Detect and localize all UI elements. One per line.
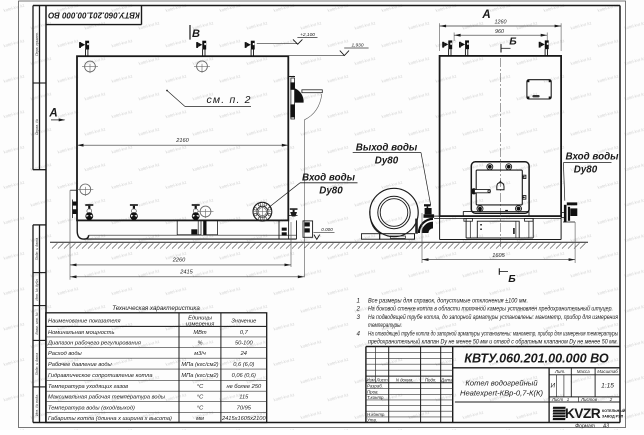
- svg-text:Подп. и дата: Подп. и дата: [35, 238, 39, 261]
- svg-text:Инв. № дубл.: Инв. № дубл.: [35, 278, 39, 300]
- svg-text:+2,100: +2,100: [300, 32, 315, 38]
- svg-text:см. п. 2: см. п. 2: [207, 94, 251, 106]
- svg-text:Все размеры для справок, допус: Все размеры для справок, допустимые откл…: [368, 298, 528, 305]
- svg-text:Габариты котла (длинна х ширин: Габариты котла (длинна х ширина х высота…: [48, 416, 172, 422]
- svg-text:ЗАВОД РЭП: ЗАВОД РЭП: [602, 414, 624, 418]
- svg-text:0,06 (0,6): 0,06 (0,6): [232, 373, 256, 379]
- svg-text:2415х1605х2100: 2415х1605х2100: [221, 416, 266, 422]
- svg-text:КВТУ.060.201.00.000 ВО: КВТУ.060.201.00.000 ВО: [464, 351, 609, 365]
- svg-text:0,6 (6,0): 0,6 (6,0): [233, 362, 254, 368]
- svg-text:Наименование показателя: Наименование показателя: [48, 319, 121, 325]
- svg-text:МПа (кгс/см2): МПа (кгс/см2): [181, 373, 218, 379]
- svg-text:0.000: 0.000: [321, 227, 333, 232]
- svg-text:Справ. №: Справ. №: [35, 119, 39, 135]
- svg-text:70/95: 70/95: [237, 405, 252, 411]
- svg-text:Heatexpert-КВр-0,7-К(К): Heatexpert-КВр-0,7-К(К): [460, 389, 544, 398]
- svg-text:температуры.: температуры.: [368, 322, 402, 329]
- svg-text:измерения: измерения: [186, 321, 214, 327]
- svg-text:1: 1: [357, 298, 360, 305]
- svg-text:2: 2: [609, 397, 613, 402]
- svg-text:А: А: [48, 108, 57, 120]
- svg-text:Лист: Лист: [375, 377, 388, 382]
- svg-text:В: В: [192, 28, 200, 40]
- svg-text:Подп.: Подп.: [425, 377, 437, 382]
- svg-text:Гидравлическое сопротивление к: Гидравлическое сопротивление котла: [48, 373, 153, 379]
- svg-text:Подп. и дата: Подп. и дата: [35, 353, 39, 376]
- svg-text:Выход воды: Выход воды: [356, 143, 418, 154]
- svg-text:1,930: 1,930: [351, 43, 363, 49]
- svg-text:Перв. примен.: Перв. примен.: [35, 32, 39, 56]
- svg-text:Dy80: Dy80: [319, 186, 343, 197]
- svg-text:Температура воды (вход/выход): Температура воды (вход/выход): [48, 405, 135, 411]
- svg-text:А3: А3: [602, 424, 609, 430]
- svg-text:предохранительный клапан Dy н: предохранительный клапан Dy не менее 50 …: [368, 339, 618, 346]
- svg-text:Номинальная мощность: Номинальная мощность: [48, 330, 114, 336]
- svg-text:2415: 2415: [179, 270, 193, 276]
- svg-text:Взам. инв. №: Взам. инв. №: [35, 312, 39, 334]
- svg-text:Масса: Масса: [577, 369, 591, 374]
- svg-text:1260: 1260: [495, 20, 507, 26]
- svg-text:Разраб.: Разраб.: [367, 384, 383, 389]
- svg-text:Инв. № подл.: Инв. № подл.: [35, 394, 39, 416]
- svg-text:На отводящей трубе котла до за: На отводящей трубе котла до запорной арм…: [368, 331, 618, 338]
- svg-text:Лит.: Лит.: [554, 369, 565, 374]
- svg-text:Масштаб: Масштаб: [597, 369, 618, 374]
- svg-text:Dy80: Dy80: [375, 156, 399, 167]
- svg-text:Температура уходящих газов: Температура уходящих газов: [48, 384, 128, 390]
- svg-text:°С: °С: [197, 395, 204, 401]
- svg-text:Расход воды: Расход воды: [48, 351, 82, 357]
- svg-text:не более 250: не более 250: [226, 384, 262, 390]
- svg-text:Техническая характеристика: Техническая характеристика: [112, 305, 200, 312]
- svg-text:Б: Б: [509, 36, 517, 48]
- svg-text:0,7: 0,7: [240, 330, 249, 336]
- svg-text:Дата: Дата: [440, 377, 453, 382]
- svg-text:Dy80: Dy80: [574, 165, 598, 176]
- svg-text:Листов: Листов: [580, 397, 598, 402]
- svg-text:N докум.: N докум.: [396, 377, 414, 382]
- svg-text:И: И: [551, 383, 556, 390]
- svg-text:%: %: [197, 340, 202, 346]
- svg-text:КВТУ.060.201.00.000 ВО: КВТУ.060.201.00.000 ВО: [47, 10, 140, 19]
- svg-text:°С: °С: [197, 384, 204, 390]
- svg-text:Рабочее давление воды: Рабочее давление воды: [48, 362, 113, 368]
- svg-text:Формат: Формат: [575, 424, 595, 430]
- svg-text:°С: °С: [197, 405, 204, 411]
- svg-text:А: А: [481, 9, 490, 21]
- svg-text:Н.контр.: Н.контр.: [367, 412, 386, 417]
- svg-text:2: 2: [356, 306, 361, 313]
- svg-text:Лист: Лист: [551, 397, 564, 402]
- svg-text:Вход воды: Вход воды: [566, 152, 620, 163]
- svg-text:2160: 2160: [175, 138, 189, 144]
- svg-text:4: 4: [357, 331, 361, 338]
- svg-text:На боковой стенке котла в обла: На боковой стенке котла в области топочн…: [368, 306, 613, 313]
- svg-text:Котел водогрейный: Котел водогрейный: [465, 379, 538, 388]
- svg-text:КОТЕЛЬНЫЙ: КОТЕЛЬНЫЙ: [602, 409, 626, 413]
- svg-text:Б: Б: [508, 273, 516, 285]
- svg-text:Диапазон рабочего регулировани: Диапазон рабочего регулирования: [47, 340, 141, 346]
- svg-text:МВт: МВт: [193, 330, 207, 336]
- svg-text:2260: 2260: [172, 258, 186, 264]
- svg-text:Максимальная рабочая температу: Максимальная рабочая температура воды: [48, 395, 166, 401]
- svg-text:Изм: Изм: [367, 377, 375, 382]
- svg-text:Вход воды: Вход воды: [302, 173, 356, 184]
- svg-text:KVZR: KVZR: [565, 406, 601, 421]
- svg-text:Утв.: Утв.: [367, 418, 377, 423]
- svg-text:МПа (кгс/см2): МПа (кгс/см2): [181, 362, 218, 368]
- svg-text:мм: мм: [196, 416, 204, 422]
- svg-text:3: 3: [357, 314, 361, 321]
- svg-text:24: 24: [240, 351, 247, 357]
- svg-text:1:15: 1:15: [601, 383, 614, 390]
- svg-text:м3/ч: м3/ч: [194, 351, 206, 357]
- svg-text:Значение: Значение: [231, 319, 256, 325]
- svg-text:115: 115: [239, 395, 249, 401]
- svg-text:Т.контр.: Т.контр.: [367, 395, 385, 400]
- svg-text:960: 960: [495, 29, 504, 35]
- svg-text:1605: 1605: [492, 253, 505, 259]
- svg-text:50-100: 50-100: [235, 340, 254, 346]
- svg-text:На подводящей трубе котла, до: На подводящей трубе котла, до запорной а…: [368, 314, 619, 321]
- svg-text:Пров.: Пров.: [367, 389, 379, 394]
